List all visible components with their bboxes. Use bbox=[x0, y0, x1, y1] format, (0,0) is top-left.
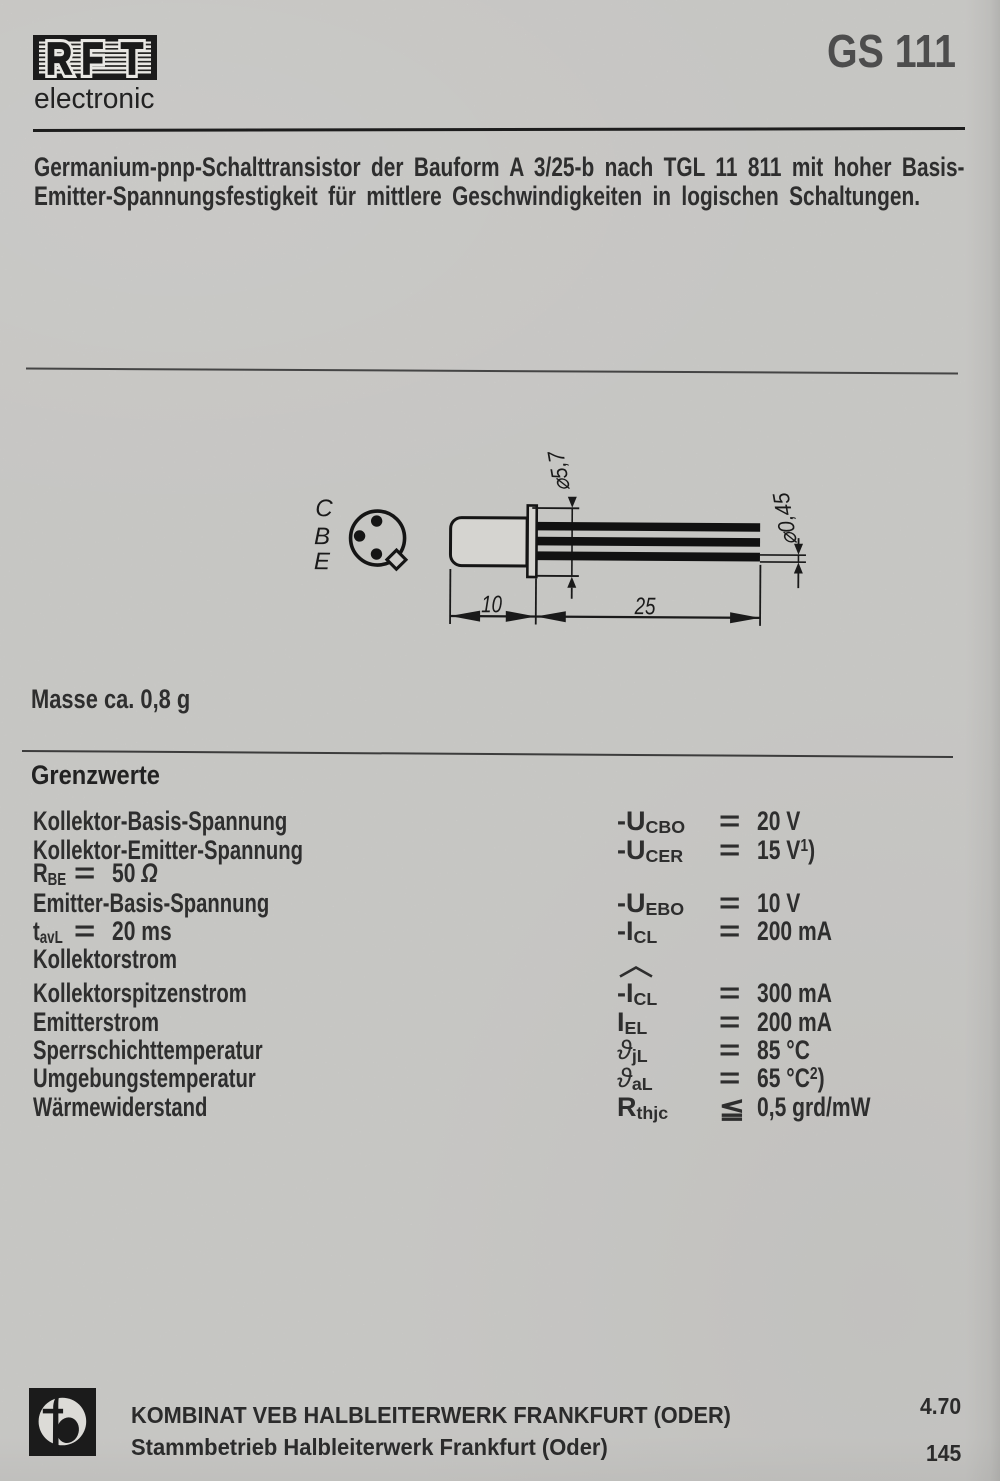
svg-text:B: B bbox=[314, 523, 330, 550]
svg-text:E: E bbox=[314, 548, 331, 575]
svg-text:25: 25 bbox=[634, 593, 657, 620]
svg-text:⌀5,7: ⌀5,7 bbox=[542, 448, 575, 493]
svg-text:C: C bbox=[315, 495, 333, 522]
svg-text:10: 10 bbox=[481, 591, 502, 618]
svg-text:⌀0,45: ⌀0,45 bbox=[767, 490, 802, 547]
